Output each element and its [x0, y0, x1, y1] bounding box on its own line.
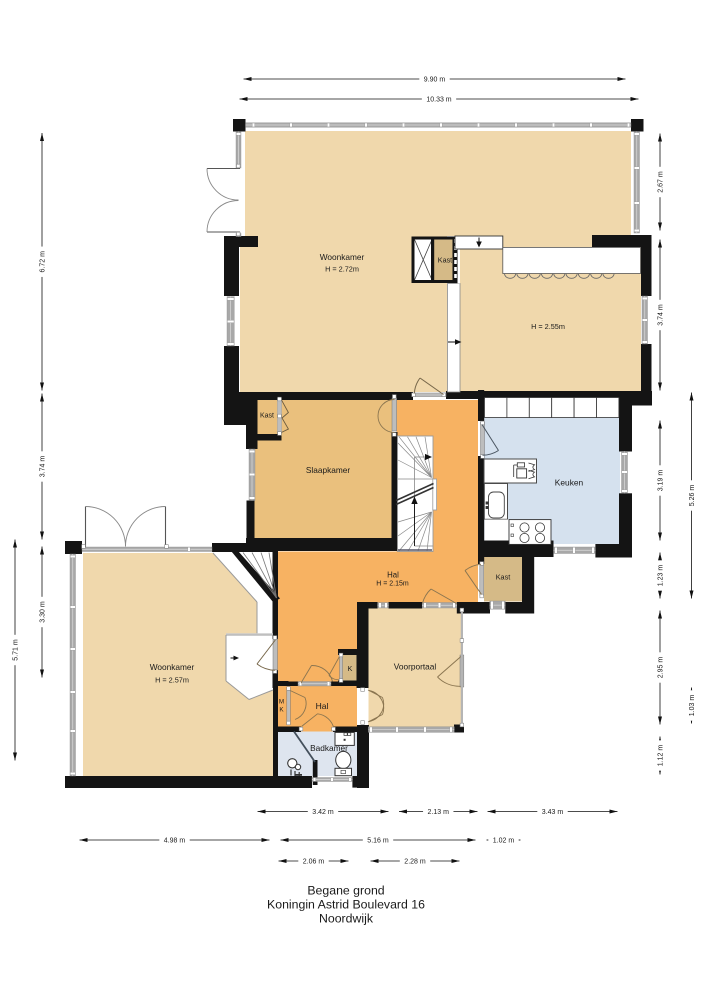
svg-text:3.42 m: 3.42 m: [312, 809, 334, 816]
svg-text:4.98 m: 4.98 m: [164, 838, 186, 845]
svg-text:3.74 m: 3.74 m: [658, 304, 665, 326]
svg-text:6.72 m: 6.72 m: [40, 251, 47, 273]
svg-text:2.95 m: 2.95 m: [658, 657, 665, 679]
svg-text:Koningin Astrid Boulevard 16: Koningin Astrid Boulevard 16: [267, 898, 425, 912]
svg-text:2.06 m: 2.06 m: [303, 859, 325, 866]
svg-text:Hal: Hal: [387, 571, 399, 580]
svg-text:5.71 m: 5.71 m: [13, 639, 20, 661]
svg-text:3.43 m: 3.43 m: [542, 809, 564, 816]
svg-text:H = 2.55m: H = 2.55m: [531, 322, 565, 331]
svg-text:Keuken: Keuken: [555, 478, 584, 488]
svg-text:1.23 m: 1.23 m: [658, 565, 665, 587]
svg-text:5.26 m: 5.26 m: [689, 485, 696, 507]
svg-text:Kast: Kast: [496, 573, 511, 582]
svg-text:10.33 m: 10.33 m: [426, 97, 451, 104]
svg-text:1.12 m: 1.12 m: [658, 745, 665, 767]
svg-text:Voorportaal: Voorportaal: [394, 662, 437, 672]
svg-text:3.19 m: 3.19 m: [658, 470, 665, 492]
svg-text:2.13 m: 2.13 m: [428, 809, 450, 816]
svg-text:2.28 m: 2.28 m: [404, 859, 426, 866]
svg-text:Kast: Kast: [260, 413, 274, 420]
svg-text:Badkamer: Badkamer: [310, 743, 348, 753]
svg-text:H = 2.15m: H = 2.15m: [376, 581, 409, 588]
svg-text:H = 2.57m: H = 2.57m: [155, 676, 189, 685]
svg-text:3.74 m: 3.74 m: [40, 456, 47, 478]
svg-text:Hal: Hal: [316, 701, 329, 711]
svg-text:Woonkamer: Woonkamer: [320, 252, 365, 262]
svg-text:2.67 m: 2.67 m: [658, 171, 665, 193]
svg-text:Begane grond: Begane grond: [307, 884, 384, 898]
svg-text:Noordwijk: Noordwijk: [319, 912, 374, 926]
svg-text:M: M: [279, 699, 284, 706]
svg-text:1.03 m: 1.03 m: [689, 695, 696, 717]
svg-text:3.30 m: 3.30 m: [40, 601, 47, 623]
svg-text:5.16 m: 5.16 m: [367, 838, 389, 845]
svg-text:Slaapkamer: Slaapkamer: [306, 465, 351, 475]
svg-text:K: K: [348, 666, 353, 673]
svg-text:1.02 m: 1.02 m: [493, 838, 515, 845]
svg-text:Woonkamer: Woonkamer: [150, 662, 195, 672]
svg-text:Kast: Kast: [438, 256, 452, 265]
svg-text:9.90 m: 9.90 m: [424, 77, 446, 84]
svg-text:H = 2.72m: H = 2.72m: [325, 265, 359, 274]
